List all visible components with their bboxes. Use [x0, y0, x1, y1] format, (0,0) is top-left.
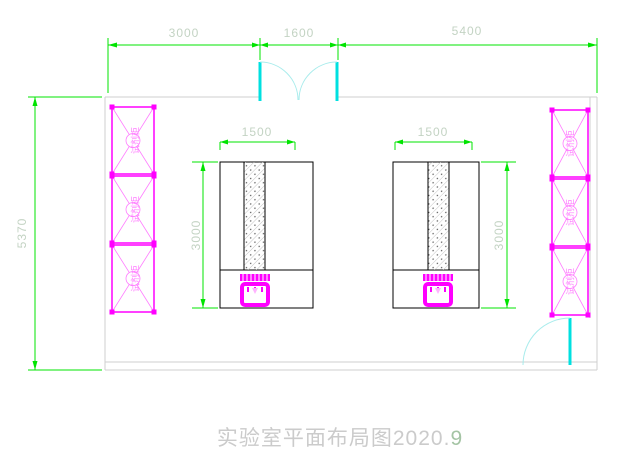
dimension-top-5400: 5400	[437, 24, 497, 38]
door-leaf-right	[336, 62, 339, 101]
dimension-bench-left-depth: 3000	[189, 215, 203, 255]
floorplan-drawing: 3000 1600 5400 5370 1500 1500 3000 3000 …	[0, 0, 619, 469]
cabinet-right-2-label: 试剂柜	[564, 193, 577, 233]
door-swing-arc	[523, 318, 570, 365]
drawing-title: 实验室平面布局图2020.9	[160, 422, 520, 452]
door-leaf	[569, 318, 572, 365]
sink-right	[423, 274, 453, 305]
drawing-title-main: 实验室平面布局图2020.	[217, 427, 451, 450]
dimension-bench-right-width: 1500	[403, 125, 463, 139]
cabinet-left-1-label: 试剂柜	[129, 121, 142, 161]
dimension-top-3000: 3000	[154, 26, 214, 40]
door-leaf-left	[259, 62, 262, 101]
dimension-bench-right-depth: 3000	[492, 215, 506, 255]
cabinet-left-2-label: 试剂柜	[129, 190, 142, 230]
cabinet-right-3-label: 试剂柜	[564, 262, 577, 302]
bench-left-hatch-strip	[244, 162, 265, 270]
floorplan-canvas	[0, 0, 619, 469]
room-walls	[105, 97, 597, 370]
cabinet-right-1-label: 试剂柜	[564, 124, 577, 164]
drawing-title-suffix: 9	[450, 427, 463, 450]
double-door	[259, 62, 339, 101]
bench-left	[220, 162, 313, 308]
cabinet-left-3-label: 试剂柜	[129, 259, 142, 299]
sink-left	[240, 274, 270, 305]
single-door	[523, 318, 572, 365]
dimension-room-height: 5370	[15, 211, 29, 255]
bench-right-hatch-strip	[428, 162, 449, 270]
bench-right	[393, 162, 479, 308]
door-swing-arc-right	[299, 62, 337, 100]
door-swing-arc-left	[260, 62, 298, 100]
dimension-top-1600: 1600	[269, 26, 329, 40]
dimension-bench-left-width: 1500	[227, 125, 287, 139]
